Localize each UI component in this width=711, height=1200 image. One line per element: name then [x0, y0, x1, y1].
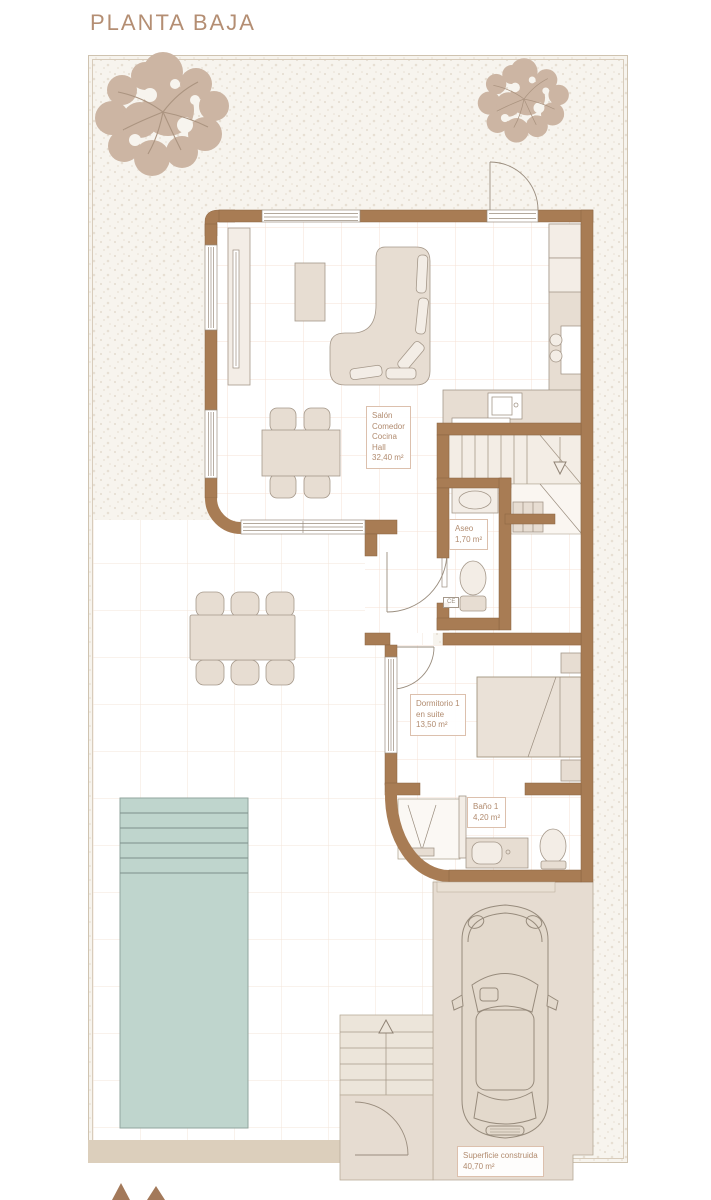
window — [262, 210, 360, 222]
bath-partition — [459, 796, 466, 858]
sliding-door — [241, 520, 365, 534]
porch-step — [437, 882, 555, 892]
floor-plan-canvas — [0, 0, 711, 1200]
understairs-closet — [511, 484, 581, 534]
room-label-dormitorio: Dormitorio 1 en suite 13,50 m² — [410, 694, 466, 736]
outdoor-chair — [196, 660, 224, 685]
outdoor-chair — [196, 592, 224, 617]
dining-chair — [270, 474, 296, 498]
room-label-superficie: Superficie construida 40,70 m² — [457, 1146, 544, 1177]
outdoor-dining-set — [190, 592, 295, 685]
room-label-aseo: Aseo 1,70 m² — [449, 519, 488, 550]
room-label-bano: Baño 1 4,20 m² — [467, 797, 506, 828]
floor-plan-page: PLANTA BAJA — [0, 0, 711, 1200]
logo-mark — [112, 1183, 165, 1200]
tv-unit — [228, 228, 250, 385]
exterior-stairs — [340, 1015, 433, 1095]
ce-cabinet-label: CE — [443, 597, 459, 608]
staircase — [449, 435, 581, 484]
window — [205, 245, 217, 330]
outdoor-chair — [266, 592, 294, 617]
nightstand — [561, 760, 581, 781]
car-top-view — [452, 905, 558, 1138]
outdoor-chair — [231, 592, 259, 617]
cooktop-burner-icon — [550, 350, 562, 362]
window — [385, 657, 397, 753]
toilet — [540, 829, 566, 869]
aseo-sink — [452, 487, 498, 513]
dining-chair — [270, 408, 296, 432]
gate-door — [340, 1095, 433, 1180]
dining-table — [262, 430, 340, 476]
room-label-salon: Salón Comedor Cocina Hall 32,40 m² — [366, 406, 411, 469]
outdoor-chair — [266, 660, 294, 685]
aseo-toilet — [460, 561, 486, 611]
outdoor-chair — [231, 660, 259, 685]
pool — [120, 798, 248, 1128]
bed — [477, 677, 581, 757]
bathroom-sink — [466, 838, 528, 868]
coffee-table — [295, 263, 325, 321]
window — [205, 410, 217, 478]
dining-chair — [304, 408, 330, 432]
dining-chair — [304, 474, 330, 498]
nightstand — [561, 653, 581, 673]
kitchen-appliance — [561, 326, 581, 374]
cooktop-burner-icon — [550, 334, 562, 346]
outdoor-dining-table — [190, 615, 295, 660]
